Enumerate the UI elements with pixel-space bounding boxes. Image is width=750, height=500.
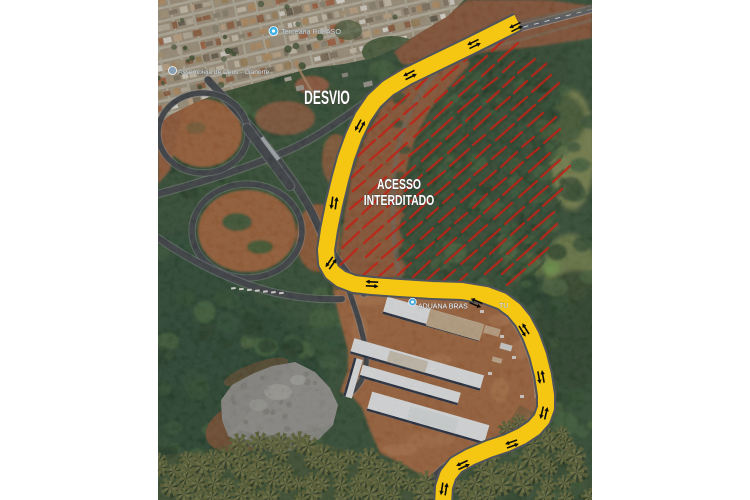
svg-text:Tercearia RoFASO: Tercearia RoFASO [281, 27, 341, 36]
svg-text:Assembleia de Deus - Cianorte: Assembleia de Deus - Cianorte [178, 69, 270, 76]
svg-text:TU: TU [499, 303, 508, 310]
svg-text:ADUANA BRAS: ADUANA BRAS [418, 304, 468, 311]
svg-text:INTERDITADO: INTERDITADO [364, 192, 435, 208]
svg-text:ACESSO: ACESSO [377, 176, 421, 192]
svg-text:DESVIO: DESVIO [304, 87, 350, 109]
